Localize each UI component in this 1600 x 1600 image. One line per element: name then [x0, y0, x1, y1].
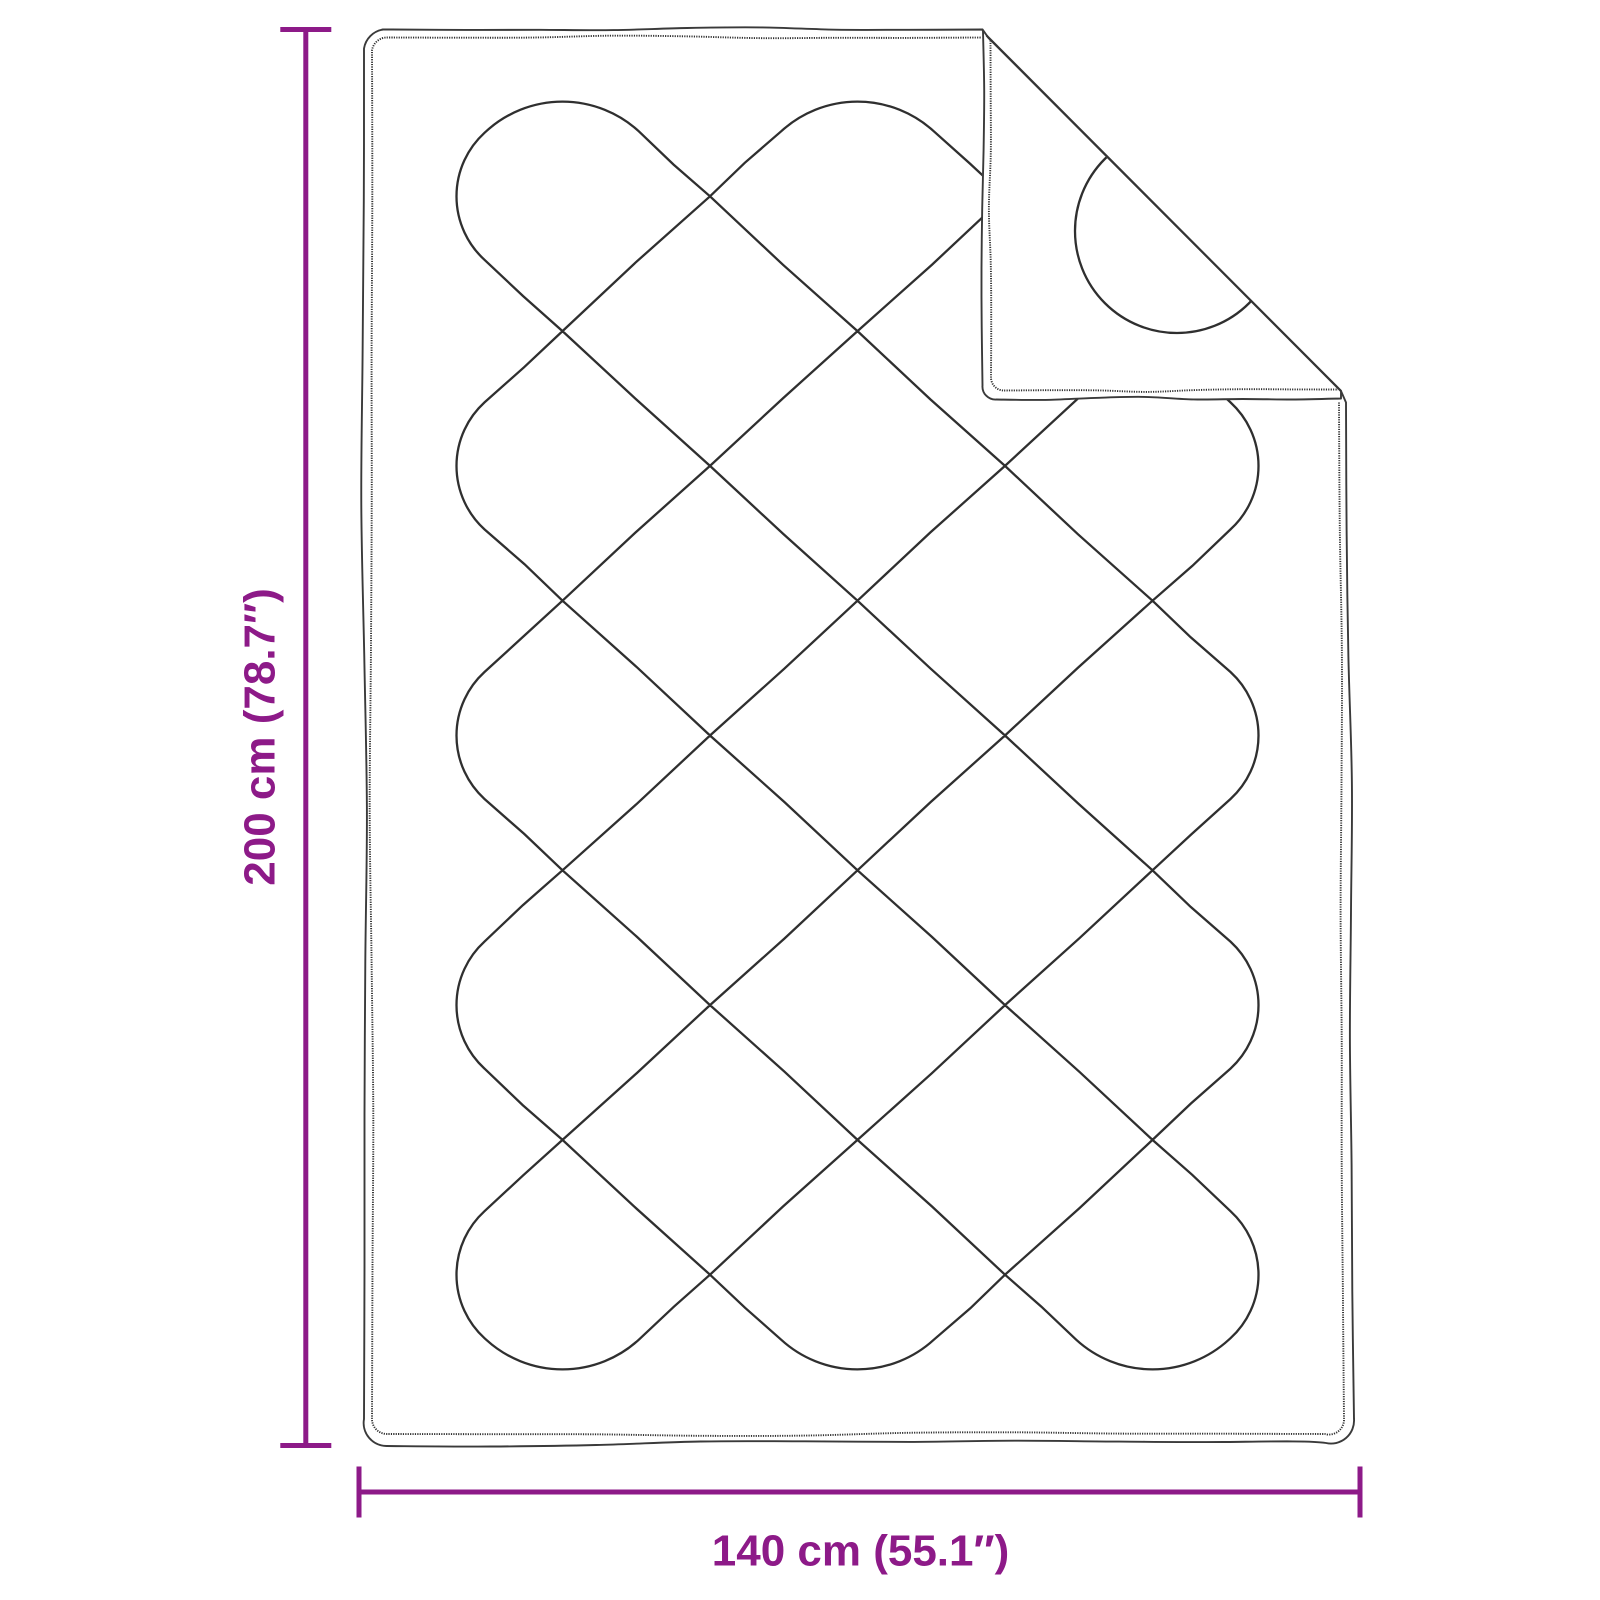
svg-text:140 cm (55.1″): 140 cm (55.1″)	[712, 1527, 1009, 1576]
svg-text:200 cm (78.7″): 200 cm (78.7″)	[236, 588, 285, 885]
